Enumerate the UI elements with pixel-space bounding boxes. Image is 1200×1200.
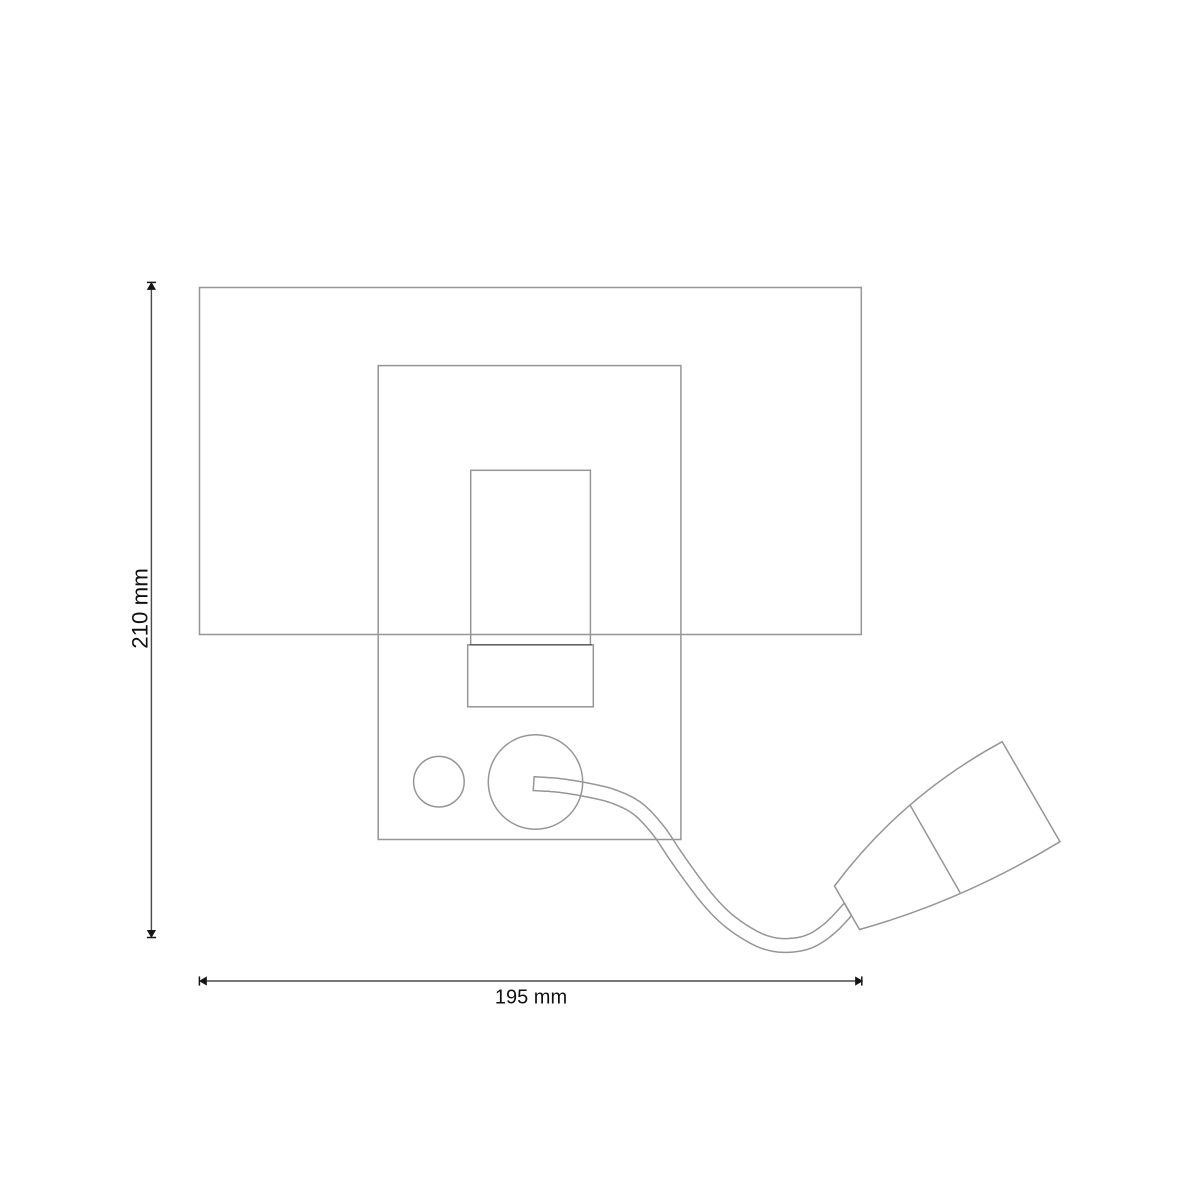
svg-text:210 mm: 210 mm bbox=[127, 568, 152, 649]
svg-text:195 mm: 195 mm bbox=[495, 987, 567, 1009]
